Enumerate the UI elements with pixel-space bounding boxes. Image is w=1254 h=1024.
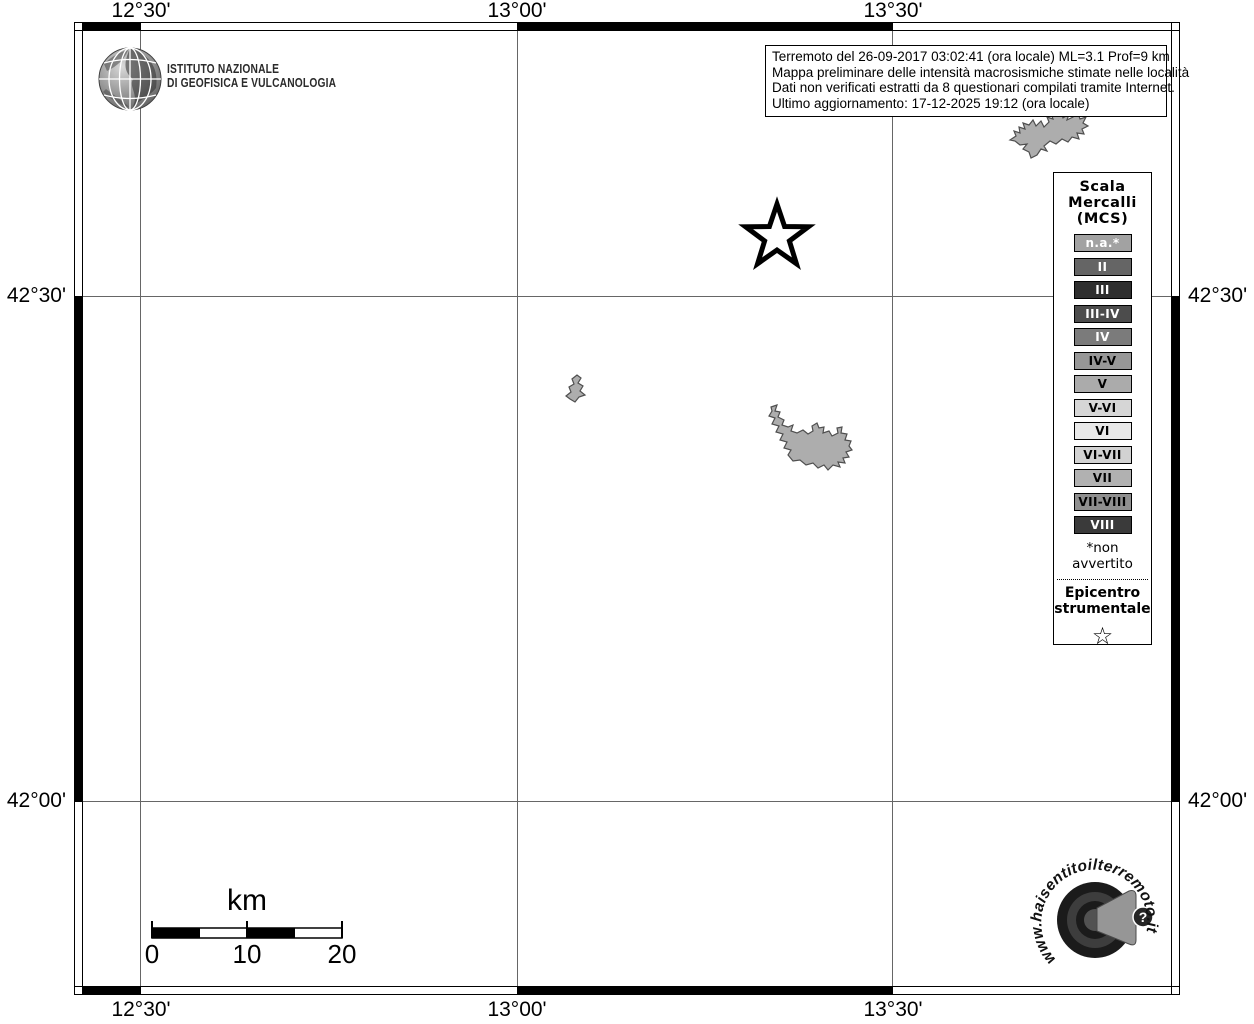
ingv-wordmark: ISTITUTO NAZIONALE DI GEOFISICA E VULCAN…: [167, 63, 373, 90]
scalebar-label-10: 10: [225, 941, 269, 967]
legend-divider: [1057, 579, 1148, 580]
event-data-note: Dati non verificati estratti da 8 questi…: [772, 80, 1160, 96]
legend-epicenter-line-1: Epicentro: [1054, 585, 1151, 602]
legend-items: n.a.*IIIIIIII-IVIVIV-VVV-VIVIVI-VIIVIIVI…: [1054, 234, 1151, 534]
legend-item-12: VIII: [1074, 516, 1132, 534]
lon-label-top-1330: 13°30': [848, 0, 938, 21]
legend-title-line-2: Mercalli: [1054, 195, 1151, 211]
graticule-lines: [83, 31, 1172, 987]
ingv-line-1: ISTITUTO NAZIONALE: [167, 63, 336, 77]
legend-item-4: IV: [1074, 328, 1132, 346]
legend-star-icon: ☆: [1054, 623, 1151, 649]
legend-item-11: VII-VIII: [1074, 493, 1132, 511]
event-updated: Ultimo aggiornamento: 17-12-2025 19:12 (…: [772, 96, 1160, 112]
legend-item-8: VI: [1074, 422, 1132, 440]
lake-central: [769, 405, 852, 470]
lakes: [566, 112, 1088, 470]
lat-label-left-4230: 42°30': [0, 285, 66, 306]
scalebar-title: km: [200, 886, 294, 916]
frame-corners: [75, 23, 1180, 995]
event-title: Terremoto del 26-09-2017 03:02:41 (ora l…: [772, 49, 1160, 65]
lat-label-right-4230: 42°30': [1188, 285, 1254, 306]
legend-item-6: V: [1074, 375, 1132, 393]
legend-box: Scala Mercalli (MCS) n.a.*IIIIIIII-IVIVI…: [1053, 172, 1152, 645]
scalebar-label-0: 0: [130, 941, 174, 967]
lon-label-bottom-1230: 12°30': [96, 999, 186, 1020]
legend-title-line-3: (MCS): [1054, 211, 1151, 227]
legend-item-1: II: [1074, 258, 1132, 276]
legend-footnote: *non avvertito: [1054, 540, 1151, 572]
scalebar: [152, 921, 342, 938]
scalebar-label-20: 20: [320, 941, 364, 967]
frame-black-segments: [75, 23, 1180, 995]
legend-title-line-1: Scala: [1054, 179, 1151, 195]
epicenter-star-icon: [746, 204, 809, 264]
lake-small: [566, 375, 585, 402]
ingv-line-2: DI GEOFISICA E VULCANOLOGIA: [167, 77, 336, 91]
macroseismic-map: ? www.haisentitoilterremoto.it 12°30' 13…: [0, 0, 1254, 1024]
legend-title: Scala Mercalli (MCS): [1054, 179, 1151, 227]
lat-label-left-4200: 42°00': [0, 790, 66, 811]
lon-label-top-1230: 12°30': [96, 0, 186, 21]
lat-label-right-4200: 42°00': [1188, 790, 1254, 811]
lon-label-bottom-1300: 13°00': [472, 999, 562, 1020]
frame-ticks: [75, 23, 1180, 995]
legend-item-0: n.a.*: [1074, 234, 1132, 252]
legend-item-5: IV-V: [1074, 352, 1132, 370]
legend-item-9: VI-VII: [1074, 446, 1132, 464]
lon-label-top-1300: 13°00': [472, 0, 562, 21]
legend-epicenter-label: Epicentro strumentale: [1054, 585, 1151, 618]
lake-northeast: [1010, 112, 1088, 158]
map-frame: [75, 23, 1180, 995]
legend-item-3: III-IV: [1074, 305, 1132, 323]
lon-label-bottom-1330: 13°30': [848, 999, 938, 1020]
legend-item-7: V-VI: [1074, 399, 1132, 417]
legend-item-2: III: [1074, 281, 1132, 299]
ingv-globe-icon: [99, 48, 161, 110]
event-info-box: Terremoto del 26-09-2017 03:02:41 (ora l…: [765, 45, 1167, 117]
hsit-logo: ? www.haisentitoilterremoto.it: [1028, 857, 1160, 968]
event-subtitle: Mappa preliminare delle intensità macros…: [772, 65, 1160, 81]
legend-item-10: VII: [1074, 469, 1132, 487]
legend-epicenter-line-2: strumentale: [1054, 601, 1151, 618]
